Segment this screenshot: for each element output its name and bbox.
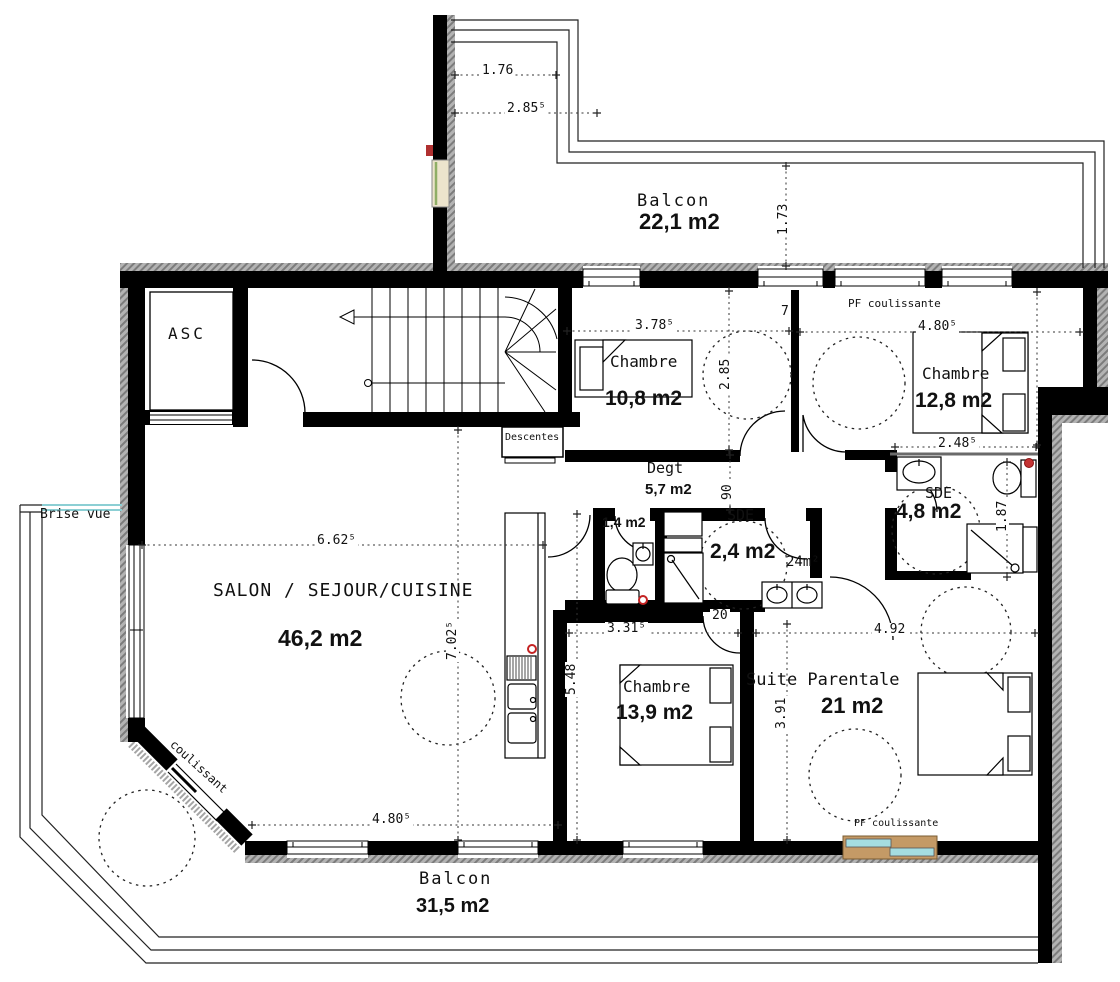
- wall-right-step: [1038, 387, 1108, 415]
- bedroom1-area: 10,8 m2: [605, 388, 682, 409]
- bedroom2-area: 12,8 m2: [915, 390, 992, 411]
- door-bedroom1: [740, 411, 785, 456]
- window-pf-coulissante: [843, 836, 937, 859]
- elevator-door: [150, 412, 232, 424]
- dim-chain-right-tick: [1033, 288, 1041, 296]
- descentes-label: Descentes: [505, 433, 559, 443]
- dim-2-855-tick: [593, 109, 601, 117]
- dim-90-label: 90: [721, 482, 734, 502]
- shower-sde1: [664, 512, 703, 603]
- wall-wing-segment: [845, 450, 890, 460]
- dim-6-625-label: 6.62⁵: [315, 534, 358, 547]
- bed-bedroom2: [982, 333, 1028, 433]
- vanity-double-sink: [762, 582, 822, 608]
- dim-4-92-tick: [1031, 629, 1039, 637]
- wall-thin-partition: [791, 288, 799, 452]
- dim-4-805-top-tick: [1076, 328, 1084, 336]
- floor-plan: ASCBalcon22,1 m2PF coulissanteChambre10,…: [0, 0, 1120, 982]
- wall-balcony-top: [433, 15, 447, 271]
- dim-4-805-bottom-label: 4.80⁵: [370, 813, 413, 826]
- dim-2-85-label: 2.85: [719, 357, 732, 392]
- window-top-3: [835, 266, 925, 290]
- dim-1-87-tick: [1003, 573, 1011, 581]
- brise-vue-label: Brise vue: [40, 508, 110, 521]
- window-top-4: [942, 266, 1012, 290]
- dim-1-73-label: 1.73: [777, 202, 790, 237]
- kitchen-counter: [505, 513, 545, 758]
- pf-coulissante-bottom-label: PF coulissante: [854, 819, 938, 829]
- dim-1-76-tick: [552, 71, 560, 79]
- vanity-note: 24m²: [786, 555, 820, 569]
- wall-suite-west: [740, 610, 754, 841]
- window-left: [126, 545, 147, 718]
- bedroom2-label: Chambre: [922, 366, 989, 382]
- bed-suite: [918, 673, 1032, 775]
- window-top-2: [758, 266, 823, 290]
- degagement-area: 5,7 m2: [645, 482, 692, 497]
- window-bottom-2: [458, 838, 538, 858]
- window-bottom-1: [287, 838, 368, 858]
- staircase: [340, 288, 557, 412]
- asc-room-label: ASC: [168, 326, 206, 342]
- insulation-hatch-layer: [120, 15, 1108, 963]
- walls-layer: [120, 15, 1108, 963]
- window-bottom-3: [623, 838, 703, 858]
- wall-left-upper: [128, 271, 145, 545]
- dim-1-76-label: 1.76: [480, 64, 515, 77]
- suite-area: 21 m2: [821, 695, 883, 717]
- degagement-label: Degt: [647, 461, 683, 476]
- wall-sde2-bottom: [885, 571, 971, 580]
- wc-area: 1,4 m2: [602, 515, 646, 529]
- red-mark-kitchen: [528, 645, 536, 653]
- dim-7-025-tick: [454, 426, 462, 434]
- suite-label: Suite Parentale: [746, 672, 900, 689]
- dim-3-785-label: 3.78⁵: [633, 319, 676, 332]
- balcony-bottom-area: 31,5 m2: [416, 896, 489, 916]
- dim-2-85-tick: [725, 287, 733, 295]
- dim-2-485-label: 2.48⁵: [936, 437, 979, 450]
- diagonal-wall: [139, 732, 247, 840]
- dim-5-48-tick: [573, 510, 581, 518]
- door-hall: [252, 360, 305, 413]
- dim-1-87-label: 1.87: [996, 499, 1009, 534]
- sde2-area: 4,8 m2: [896, 501, 961, 522]
- bedroom1-label: Chambre: [610, 354, 677, 370]
- red-mark-balcony-wall: [426, 145, 433, 156]
- red-mark-wc: [639, 596, 647, 604]
- window-top-1: [583, 266, 640, 290]
- dim-2-855-label: 2.85⁵: [505, 102, 548, 115]
- red-mark-sde2: [1025, 459, 1034, 468]
- dim-4-805-top-label: 4.80⁵: [916, 320, 959, 333]
- wall-right-upper: [1083, 271, 1097, 391]
- dim-7-025-label: 7.02⁵: [446, 619, 459, 662]
- dim-3-91-label: 3.91: [775, 696, 788, 731]
- dim-4-92-label: 4.92: [872, 623, 907, 636]
- window-balcony-wall-green: [432, 160, 449, 207]
- wall-dim-20: 20: [710, 609, 730, 622]
- wall-dim-7: 7: [779, 305, 791, 318]
- dim-3-91-tick: [783, 620, 791, 628]
- wall-right-lower: [1038, 415, 1052, 963]
- handbasin-wc: [633, 543, 653, 565]
- wall-stair-right: [558, 288, 572, 414]
- wall-stair-bottom: [303, 412, 580, 427]
- sde1-area: 2,4 m2: [710, 541, 775, 562]
- dim-2-485-tick: [891, 443, 899, 451]
- wall-salon-bedroom3: [553, 610, 567, 841]
- bedroom3-label: Chambre: [623, 679, 690, 695]
- door-entry: [548, 515, 590, 557]
- pf-coulissante-top-label: PF coulissante: [848, 298, 941, 309]
- salon-label: SALON / SEJOUR/CUISINE: [213, 582, 473, 600]
- balcony-bottom-label: Balcon: [419, 871, 492, 888]
- sde1-label: SDE: [727, 508, 754, 523]
- dim-4-805-bottom-tick: [248, 821, 256, 829]
- balcony-top-area: 22,1 m2: [639, 211, 720, 233]
- asc-room-outline: [150, 292, 233, 410]
- door-wing: [803, 415, 846, 452]
- bedroom3-area: 13,9 m2: [616, 702, 693, 723]
- sde2-label: SDE: [925, 486, 952, 501]
- salon-area: 46,2 m2: [278, 627, 362, 650]
- balcony-top-label: Balcon: [637, 193, 710, 210]
- dim-5-48-label: 5.48: [565, 662, 578, 697]
- wall-asc-right: [233, 288, 248, 427]
- dim-3-315-label: 3.31⁵: [605, 622, 648, 635]
